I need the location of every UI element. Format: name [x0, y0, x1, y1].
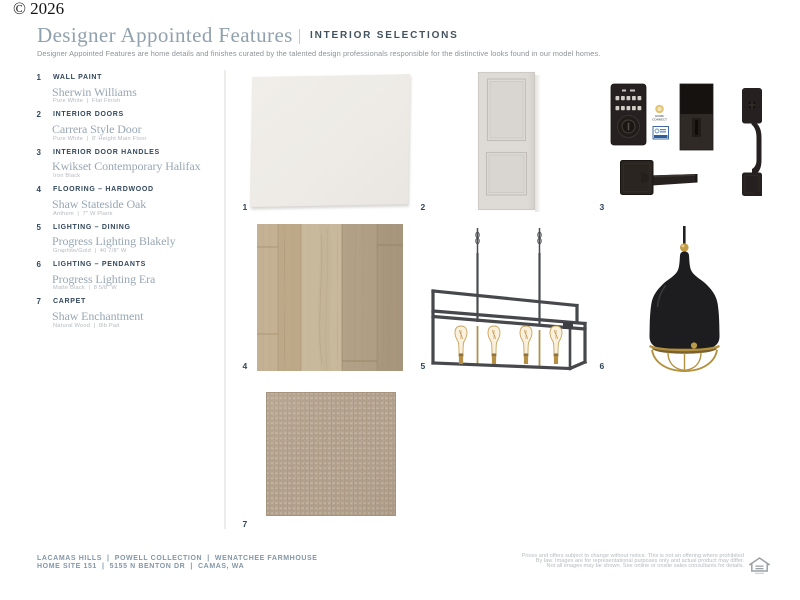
svg-text:CONNECT: CONNECT [652, 118, 667, 122]
